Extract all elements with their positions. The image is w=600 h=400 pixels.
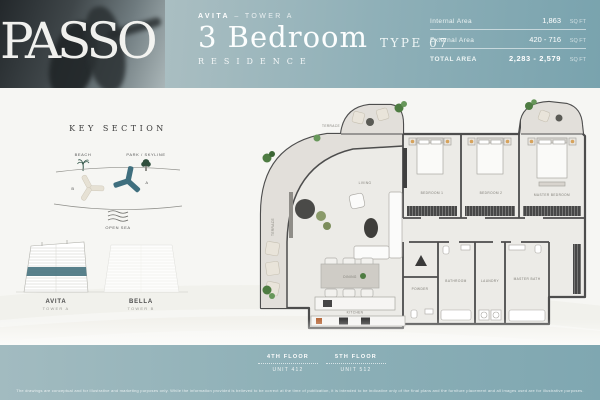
avita-tower-label: TOWER A xyxy=(43,306,70,311)
bella-tower-label: TOWER B xyxy=(128,306,155,311)
kitchen-island xyxy=(315,297,395,310)
key-section-title: KEY SECTION xyxy=(38,124,198,133)
disclaimer-text: The drawings are conceptual and for illu… xyxy=(0,388,600,393)
header-band: PASSO AVITA – TOWER A 3 Bedroom TYPE 07 … xyxy=(0,0,600,88)
room-label-bedroom2: BEDROOM 2 xyxy=(480,191,503,195)
room-label-kitchen: KITCHEN xyxy=(347,311,364,315)
project-name: AVITA xyxy=(198,13,230,20)
unit-number: UNIT 512 xyxy=(326,367,386,373)
floor-unit-list: 4TH FLOOR UNIT 412 5TH FLOOR UNIT 512 xyxy=(258,354,386,373)
highlighted-floors-band xyxy=(22,267,90,276)
floor-block: 5TH FLOOR UNIT 512 xyxy=(326,354,386,373)
area-table: Internal Area 1,863 SQ FT External Area … xyxy=(430,11,586,67)
waves-icon xyxy=(108,211,128,222)
tree-icon xyxy=(141,159,151,171)
sea-arc-line xyxy=(54,204,182,210)
avita-name-label: AVITA xyxy=(45,299,66,305)
tower-eyebrow: AVITA – TOWER A xyxy=(198,13,449,20)
room-label-bathroom: BATHROOM xyxy=(445,279,466,283)
room-label-terrace-top: TERRACE xyxy=(322,124,340,128)
area-unit: SQ FT xyxy=(566,38,586,44)
room-label-master: MASTER BEDROOM xyxy=(534,193,570,197)
area-value: 2,283 - 2,579 xyxy=(507,54,561,63)
bella-name-label: BELLA xyxy=(129,299,153,305)
room-label-bedroom1: BEDROOM 1 xyxy=(421,191,444,195)
park-skyline-label: PARK / SKYLINE xyxy=(126,152,165,157)
tower-name: – TOWER A xyxy=(234,13,293,20)
unit-number: UNIT 412 xyxy=(258,367,318,373)
bella-elevation xyxy=(102,245,182,292)
area-label: Internal Area xyxy=(430,18,507,25)
room-label-powder: POWDER xyxy=(412,287,429,291)
avita-elevation xyxy=(22,240,90,292)
tower-b-footprint xyxy=(72,169,106,202)
room-label-laundry: LAUNDRY xyxy=(481,279,499,283)
kitchen-counter xyxy=(311,316,405,326)
tower-b-letter: B xyxy=(71,186,74,191)
room-label-master-bath: MASTER BATH xyxy=(514,277,541,281)
brochure-page: PASSO AVITA – TOWER A 3 Bedroom TYPE 07 … xyxy=(0,0,600,400)
tower-a-letter: A xyxy=(145,180,148,185)
floor-block: 4TH FLOOR UNIT 412 xyxy=(258,354,318,373)
page-body: KEY SECTION BEACH PARK / SKYLINE xyxy=(0,88,600,345)
footer-band: 4TH FLOOR UNIT 412 5TH FLOOR UNIT 512 Th… xyxy=(0,345,600,400)
page-title: 3 Bedroom xyxy=(198,23,368,52)
residence-subtitle: RESIDENCE xyxy=(198,57,449,66)
tower-elevations: AVITA TOWER A BELLA TOWER B xyxy=(12,234,192,314)
room-label-dining: DINING xyxy=(343,275,357,279)
area-label: External Area xyxy=(430,37,507,44)
brand-logo: PASSO xyxy=(0,16,154,66)
area-unit: SQ FT xyxy=(566,57,586,63)
floor-name: 5TH FLOOR xyxy=(326,354,386,364)
planter xyxy=(316,211,326,221)
area-row-external: External Area 420 - 716 SQ FT xyxy=(430,30,586,49)
open-sea-label: OPEN SEA xyxy=(105,225,130,230)
beach-label: BEACH xyxy=(75,152,92,157)
area-row-total: TOTAL AREA 2,283 - 2,579 SQ FT xyxy=(430,49,586,67)
media-wall xyxy=(403,148,407,188)
hero-photo: PASSO xyxy=(0,0,165,88)
terrace-round-table xyxy=(295,199,315,219)
area-value: 1,863 xyxy=(507,16,561,25)
floor-name: 4TH FLOOR xyxy=(258,354,318,364)
room-label-terrace-side: TERRACE xyxy=(271,218,275,236)
area-unit: SQ FT xyxy=(566,19,586,25)
area-row-internal: Internal Area 1,863 SQ FT xyxy=(430,11,586,30)
planter xyxy=(323,222,331,230)
key-section-map: BEACH PARK / SKYLINE B xyxy=(38,150,198,234)
title-block: AVITA – TOWER A 3 Bedroom TYPE 07 RESIDE… xyxy=(198,13,449,66)
beach-arc-line xyxy=(56,167,180,172)
area-label: TOTAL AREA xyxy=(430,56,507,63)
room-label-living: LIVING xyxy=(359,181,372,185)
area-value: 420 - 716 xyxy=(507,35,561,44)
floor-plan: TERRACE TERRACE LIVING DINING KITCHEN BE… xyxy=(253,92,593,344)
